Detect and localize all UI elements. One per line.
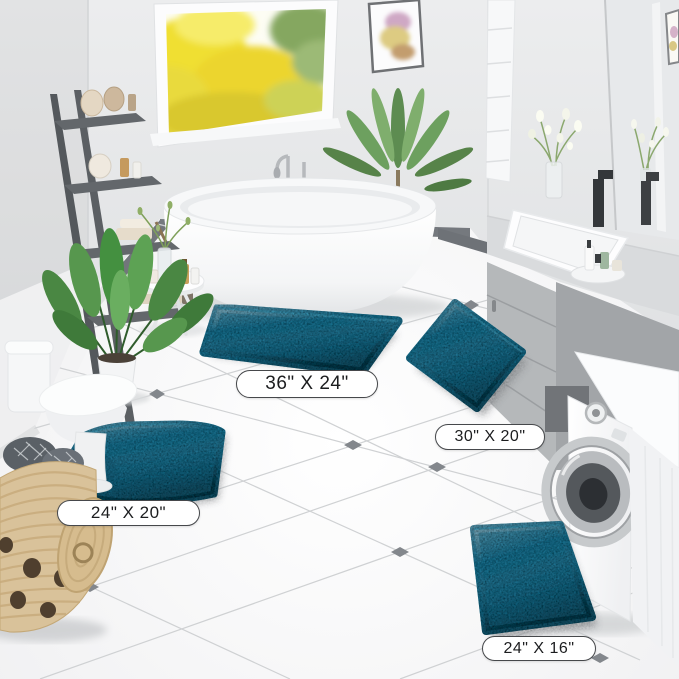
- window: [126, 0, 352, 147]
- size-label-24x20: 24" X 20": [57, 500, 200, 526]
- size-label-36x24: 36" X 24": [236, 370, 378, 398]
- size-label-24x16: 24" X 16": [482, 636, 596, 661]
- counter-vase: [546, 162, 562, 198]
- storage-shelf: [486, 0, 515, 182]
- wall-art: [369, 0, 423, 72]
- bathroom-scene: [0, 0, 679, 679]
- toilet-tank-lid: [5, 341, 53, 354]
- mirror: [605, 0, 679, 240]
- size-label-30x20: 30" X 20": [435, 424, 545, 450]
- product-photo-bathroom-rugs: 36" X 24" 30" X 20" 24" X 20" 24" X 16": [0, 0, 679, 679]
